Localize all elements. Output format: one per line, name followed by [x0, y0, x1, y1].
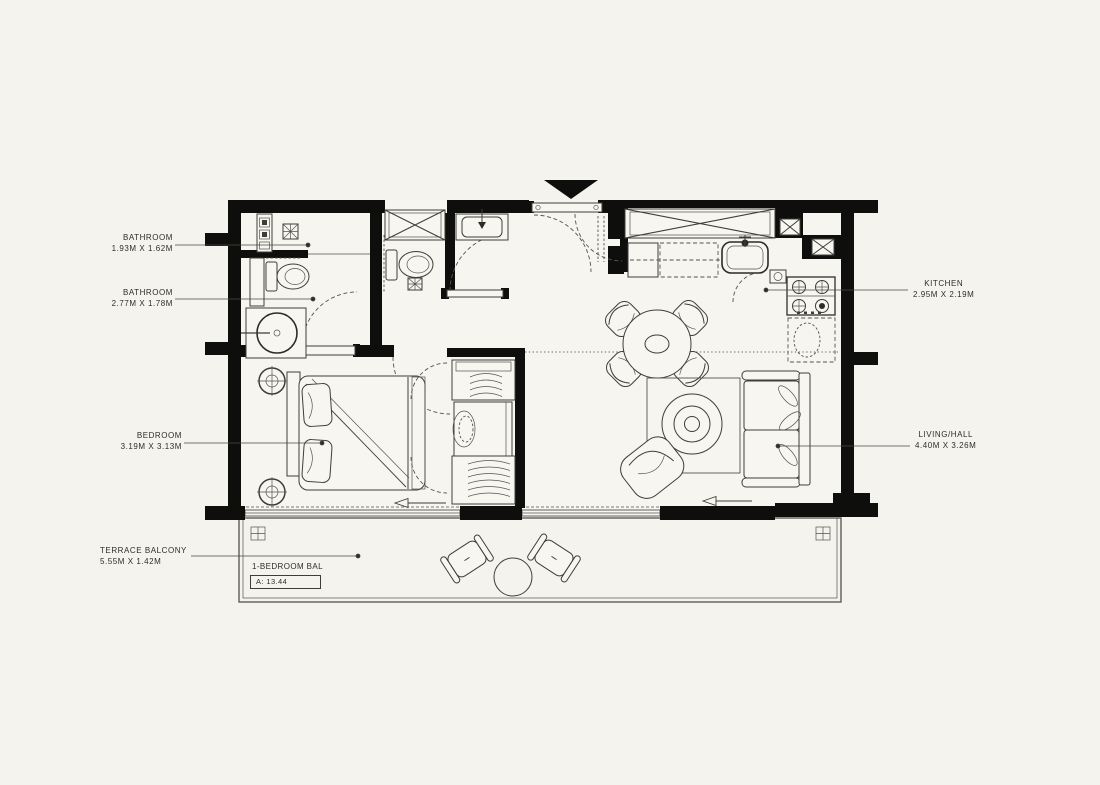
pillow: [302, 439, 333, 483]
vanity-sink: [456, 209, 508, 240]
balcony-chair: [527, 533, 582, 583]
vent-x-icon: [780, 219, 800, 235]
sofa: [742, 371, 810, 487]
room-name: BATHROOM: [112, 287, 173, 298]
floor-drain-icon: [408, 278, 422, 290]
room-label-living-hall: LIVING/HALL 4.40M X 3.26M: [915, 429, 976, 451]
stove: [787, 277, 835, 315]
room-dims: 1.93M X 1.62M: [112, 243, 173, 254]
bathroom-2-fixtures: [241, 258, 309, 358]
unit-type-label: 1-BEDROOM BAL: [252, 562, 323, 571]
room-name: LIVING/HALL: [915, 429, 976, 440]
room-label-bathroom-2: BATHROOM 2.77M X 1.78M: [112, 287, 173, 309]
room-name: KITCHEN: [913, 278, 974, 289]
room-dims: 5.55M X 1.42M: [100, 556, 187, 567]
balcony-chair: [440, 534, 495, 584]
floor-drain-icon: [283, 224, 298, 239]
room-dims: 3.19M X 3.13M: [121, 441, 182, 452]
room-name: BATHROOM: [112, 232, 173, 243]
toilet: [386, 250, 433, 280]
room-label-bathroom-1: BATHROOM 1.93M X 1.62M: [112, 232, 173, 254]
shaft-x-box: [385, 210, 445, 240]
room-label-kitchen: KITCHEN 2.95M X 2.19M: [913, 278, 974, 300]
floor-drain-icon: [816, 527, 830, 540]
shaft-x-box-2: [625, 209, 775, 238]
water-heater: [770, 270, 786, 283]
room-label-terrace-balcony: TERRACE BALCONY 5.55M X 1.42M: [100, 545, 187, 567]
room-name: BEDROOM: [121, 430, 182, 441]
room-dims: 4.40M X 3.26M: [915, 440, 976, 451]
floor-plan-drawing: [0, 0, 1100, 785]
vent-x-icon: [812, 239, 834, 255]
room-name: TERRACE BALCONY: [100, 545, 187, 556]
floor-plan-page: BATHROOM 1.93M X 1.62M BATHROOM 2.77M X …: [0, 0, 1100, 785]
balcony-table: [494, 558, 532, 596]
room-dims: 2.95M X 2.19M: [913, 289, 974, 300]
room-label-bedroom: BEDROOM 3.19M X 3.13M: [121, 430, 182, 452]
pillow: [302, 383, 333, 427]
washer-stack: [257, 214, 272, 252]
entry-marker-icon: [544, 180, 598, 199]
unit-area-badge: A: 13.44: [250, 575, 321, 589]
floor-drain-icon: [251, 527, 265, 540]
vanity-basin: [241, 308, 306, 358]
room-dims: 2.77M X 1.78M: [112, 298, 173, 309]
